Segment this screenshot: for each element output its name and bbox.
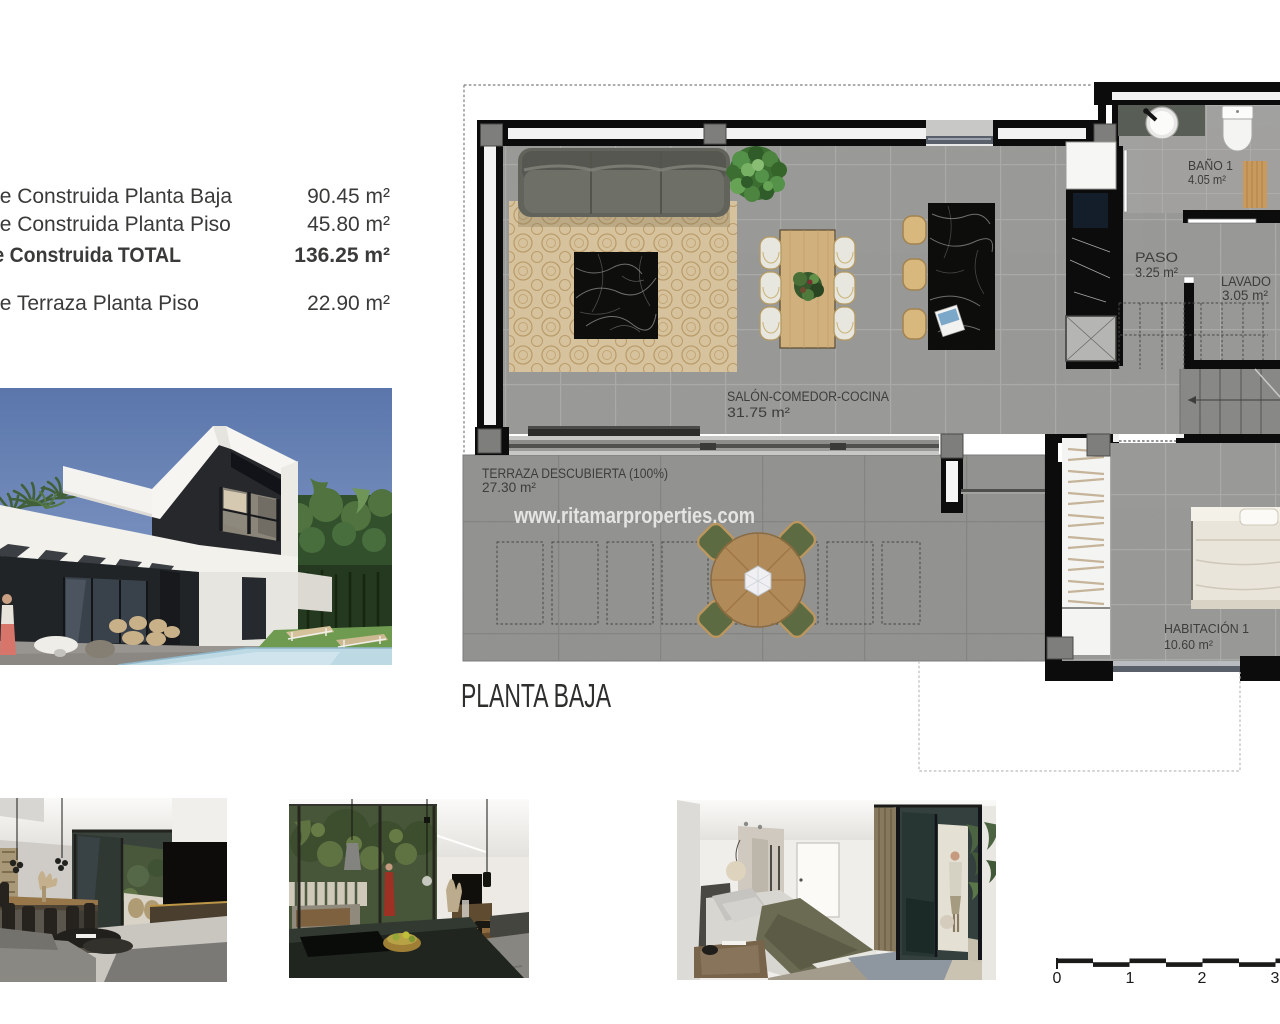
svg-text:0: 0 [1053,970,1062,987]
svg-text:45.80 m²: 45.80 m² [307,213,390,236]
svg-text:27.30 m²: 27.30 m² [482,480,537,495]
svg-text:HABITACIÓN 1: HABITACIÓN 1 [1164,621,1249,636]
svg-text:1: 1 [1126,970,1135,987]
svg-text:4.05 m²: 4.05 m² [1188,173,1226,187]
svg-text:LAVADO: LAVADO [1221,274,1271,289]
svg-text:Superficie Construida Planta B: Superficie Construida Planta Baja [0,185,232,208]
svg-text:Superficie Construida TOTAL: Superficie Construida TOTAL [0,244,181,267]
svg-text:SALÓN-COMEDOR-COCINA: SALÓN-COMEDOR-COCINA [727,389,889,404]
svg-text:22.90 m²: 22.90 m² [307,292,390,315]
svg-text:PLANTA BAJA: PLANTA BAJA [461,678,611,715]
svg-text:PASO: PASO [1135,250,1178,265]
svg-text:TERRAZA DESCUBIERTA (100%): TERRAZA DESCUBIERTA (100%) [482,466,668,481]
svg-text:BAÑO 1: BAÑO 1 [1188,159,1233,173]
svg-text:3: 3 [1271,970,1280,987]
svg-text:10.60 m²: 10.60 m² [1164,637,1214,652]
svg-text:2: 2 [1198,970,1207,987]
svg-text:Superficie Construida Planta P: Superficie Construida Planta Piso [0,213,231,236]
svg-text:3.05 m²: 3.05 m² [1222,288,1268,303]
svg-text:www.ritamarproperties.com: www.ritamarproperties.com [513,503,755,528]
svg-text:90.45 m²: 90.45 m² [307,185,390,208]
svg-text:31.75 m²: 31.75 m² [727,405,791,420]
svg-text:Superficie Terraza Planta Piso: Superficie Terraza Planta Piso [0,292,199,315]
svg-text:136.25 m²: 136.25 m² [294,244,390,267]
svg-text:3.25 m²: 3.25 m² [1135,265,1178,280]
